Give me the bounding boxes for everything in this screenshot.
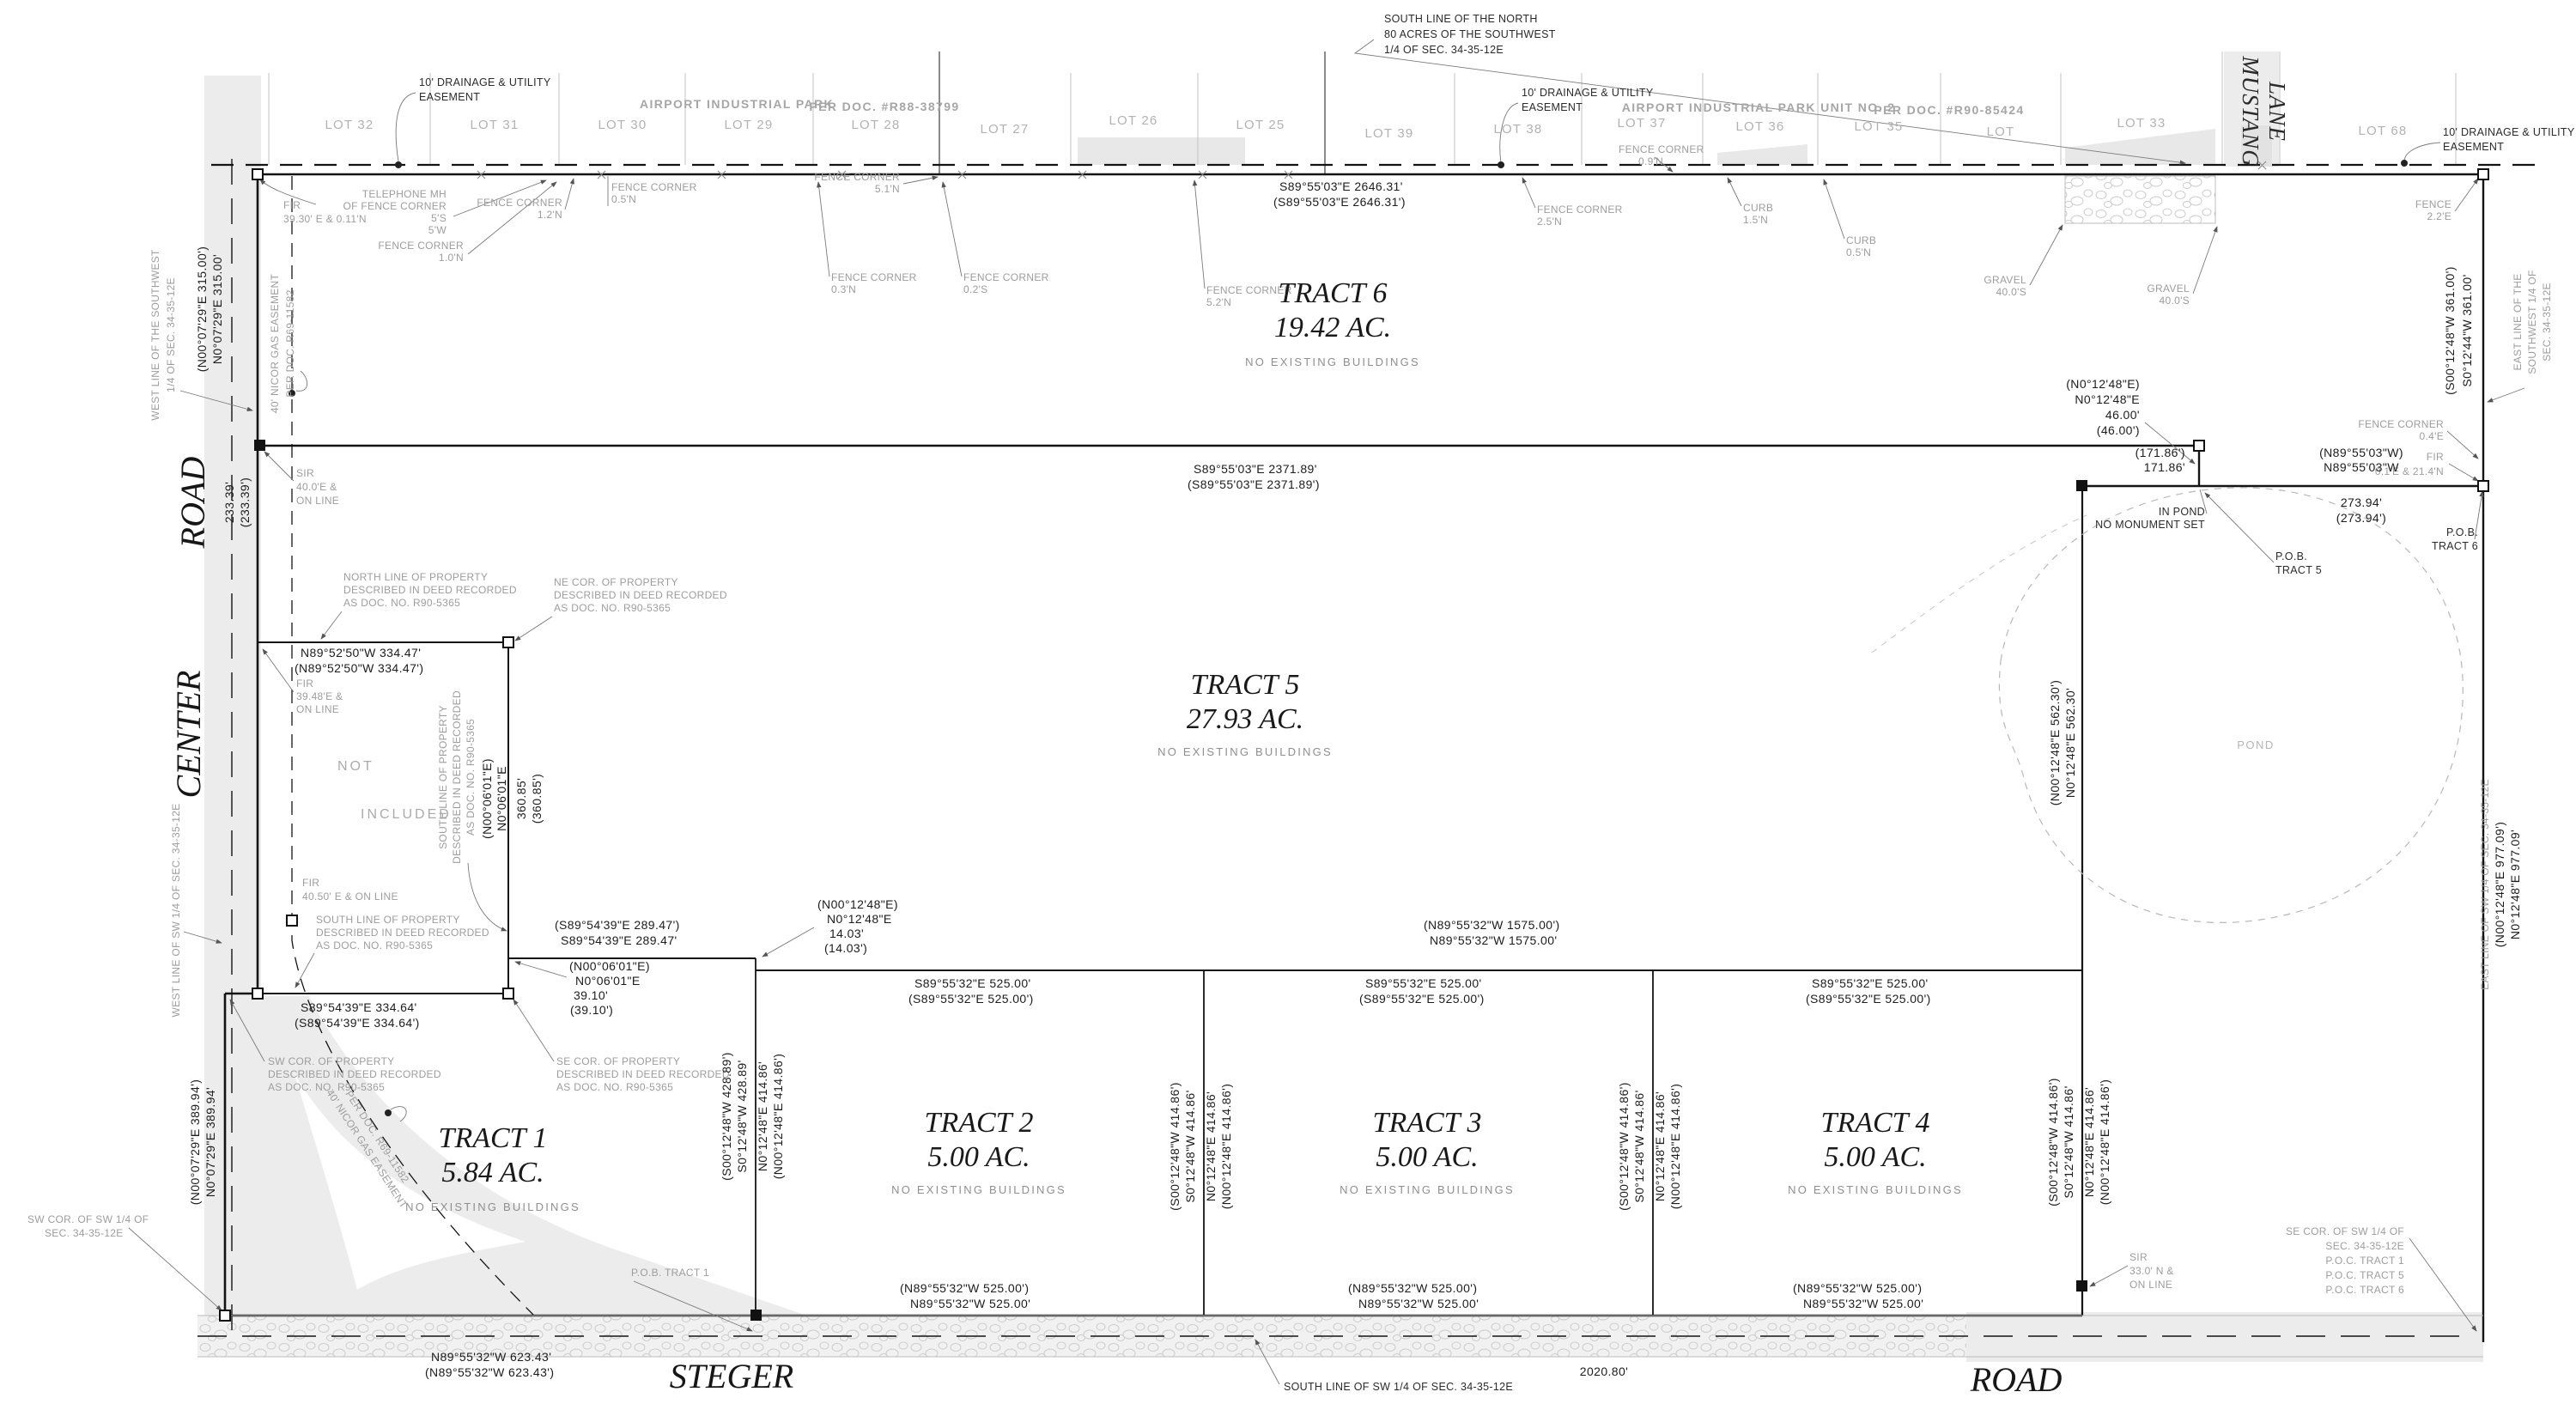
no-buildings-note: NO EXISTING BUILDINGS <box>405 1200 580 1213</box>
callout-label: IN POND <box>2159 506 2205 518</box>
callout-label: SOUTH LINE OF SW 1/4 OF SEC. 34-35-12E <box>1284 1381 1513 1393</box>
dimension-label: N0°12'48"E 414.86' <box>756 1061 769 1171</box>
road-name: STEGER <box>670 1357 793 1395</box>
subdivision-doc: PER DOC. #R90-85424 <box>1874 103 2024 117</box>
survey-note: DESCRIBED IN DEED RECORDED <box>554 589 727 601</box>
dimension-label: N0°12'48"E <box>827 912 892 926</box>
survey-note: FENCE CORNER <box>378 240 464 252</box>
survey-note: 5'W <box>428 224 447 236</box>
dimension-label: N89°52'50"W 334.47' <box>301 646 421 659</box>
dimension-label: 2020.80' <box>1580 1364 1628 1378</box>
monument-note: 39.30' E & 0.11'N <box>283 213 367 225</box>
dimension-label: (N00°07'29"E 315.00') <box>195 246 209 373</box>
lot-label: LOT 28 <box>852 118 901 132</box>
survey-note: WEST LINE OF THE SOUTHWEST <box>149 249 161 421</box>
easement-callout: EASEMENT <box>2443 141 2504 153</box>
dimension-label: N89°55'32"W 623.43' <box>431 1350 551 1364</box>
survey-note: DESCRIBED IN DEED RECORDED <box>268 1068 441 1080</box>
survey-note: P.O.C. TRACT 1 <box>2325 1255 2404 1267</box>
pond-label: POND <box>2237 738 2275 751</box>
survey-note: 0.9'N <box>1638 155 1663 167</box>
survey-note: AS DOC. NO. R90-5365 <box>343 597 460 609</box>
monument-note: FIR <box>283 199 301 211</box>
not-included-label: NOT <box>337 759 374 774</box>
lot-label: LOT 29 <box>725 118 774 132</box>
dimension-label: (S89°55'32"E 525.00') <box>1359 992 1485 1006</box>
dimension-label: (S89°54'39"E 334.64') <box>295 1016 420 1030</box>
dimension-label: N0°07'29"E 315.00' <box>210 254 224 364</box>
dimension-label: 171.86' <box>2144 460 2185 474</box>
tract-acreage: 5.00 AC. <box>1824 1141 1926 1173</box>
gravel-wedge-lot36 <box>1717 144 1807 165</box>
dimension-label: (N89°55'32"W 1575.00') <box>1424 918 1560 932</box>
survey-note: ON LINE <box>2129 1279 2172 1291</box>
dimension-label: (N00°12'48"E 562.30') <box>2048 680 2062 806</box>
survey-note: SOUTH LINE OF PROPERTY <box>437 705 449 849</box>
survey-note: SOUTHWEST 1/4 OF <box>2526 270 2538 374</box>
survey-note: SOUTH LINE OF PROPERTY <box>316 914 460 926</box>
dimension-label: S89°55'32"E 525.00' <box>1812 976 1929 990</box>
survey-note: 40.0'S <box>2160 295 2190 307</box>
nicor-easement-label: PER DOC. R69-11582 <box>284 289 296 397</box>
dimension-label: N89°55'32"W 1575.00' <box>1430 933 1557 947</box>
dimension-label: S89°54'39"E 334.64' <box>301 1000 417 1014</box>
dimension-label: S89°55'03"E 2646.31' <box>1279 179 1403 193</box>
dimension-label: N89°55'32"W 525.00' <box>910 1297 1030 1310</box>
pob-label: P.O.B. TRACT 1 <box>631 1267 709 1279</box>
survey-note: 1/4 OF SEC. 34-35-12E <box>165 277 177 392</box>
callout-label: NO MONUMENT SET <box>2095 519 2205 531</box>
survey-note: DESCRIBED IN DEED RECORDED <box>556 1068 730 1080</box>
dimension-label: S0°12'44"W 361.00' <box>2460 274 2474 386</box>
no-buildings-note: NO EXISTING BUILDINGS <box>891 1183 1066 1196</box>
lot-label: LOT 26 <box>1109 113 1158 128</box>
callout-label: P.O.B. <box>2446 526 2478 538</box>
survey-note: CURB <box>1846 234 1876 246</box>
monument-note: FIR <box>302 877 319 889</box>
survey-note: 0.4'E <box>2420 430 2444 442</box>
dimension-label: N0°12'48"E 414.86' <box>2082 1087 2096 1197</box>
survey-note: 1.2'N <box>538 209 562 221</box>
survey-note: 0.5'N <box>1846 246 1871 258</box>
tract-title: TRACT 6 <box>1279 277 1388 309</box>
road-name: MUSTANG <box>2238 55 2263 167</box>
callout-label: TRACT 6 <box>2432 540 2478 552</box>
north80-callout: 1/4 OF SEC. 34-35-12E <box>1384 44 1504 56</box>
lot-label: LOT 31 <box>471 118 519 132</box>
nicor-easement-label: 40' NICOR GAS EASEMENT <box>269 274 281 414</box>
dimension-label: (S00°12'48"W 361.00') <box>2443 266 2457 395</box>
survey-note: SEC. 34-35-12E <box>2325 1240 2404 1252</box>
dimension-label: (S00°12'48"W 414.86') <box>1168 1082 1182 1211</box>
survey-note: 2.2'E <box>2427 210 2451 222</box>
dimension-label: (S89°55'03"E 2371.89') <box>1188 477 1320 491</box>
survey-note: AS DOC. NO. R90-5365 <box>465 719 477 836</box>
no-buildings-note: NO EXISTING BUILDINGS <box>1157 745 1333 758</box>
dimension-label: (360.85') <box>530 774 544 824</box>
survey-note: 0.3'N <box>831 283 856 295</box>
tract-acreage: 5.84 AC. <box>441 1157 544 1188</box>
survey-note: NORTH LINE OF PROPERTY <box>343 571 488 583</box>
north80-callout: 80 ACRES OF THE SOUTHWEST <box>1384 28 1556 40</box>
dimension-label: (N00°12'48"E) <box>817 897 898 911</box>
dimension-label: S0°12'48"W 428.89' <box>735 1060 749 1172</box>
steger-road-east-band <box>1966 1312 2483 1362</box>
monument-note: SIR <box>2129 1251 2148 1263</box>
survey-note: FENCE CORNER <box>2358 418 2444 430</box>
dimension-label: N89°55'03"W <box>2324 460 2399 474</box>
dimension-label: (N00°07'29"E 389.94') <box>188 1079 202 1206</box>
road-name: LANE <box>2264 81 2290 142</box>
survey-note: DESCRIBED IN DEED RECORDED <box>343 584 517 596</box>
dimension-label: (N0°12'48"E) <box>2066 377 2140 391</box>
survey-note: FENCE <box>2415 198 2451 210</box>
survey-note: FENCE CORNER <box>814 171 900 183</box>
lot-label: LOT 38 <box>1494 122 1543 137</box>
survey-note: 5.1'N <box>875 183 900 195</box>
dimension-label: (N89°52'50"W 334.47') <box>295 661 423 675</box>
dimension-label: (N00°06'01"E) <box>569 959 650 973</box>
survey-note: 40.0'S <box>1996 286 2026 298</box>
dimension-label: (N89°55'32"W 623.43') <box>425 1365 554 1379</box>
easement-callout: 10' DRAINAGE & UTILITY <box>1522 87 1654 99</box>
survey-note: EAST LINE OF SW 1/4 OF SEC. 34-35-12E <box>2479 779 2491 990</box>
no-buildings-note: NO EXISTING BUILDINGS <box>1340 1183 1515 1196</box>
easement-callout: 10' DRAINAGE & UTILITY <box>419 76 551 88</box>
dimension-label: S0°12'48"W 414.86' <box>2062 1085 2075 1198</box>
tract-title: TRACT 4 <box>1821 1107 1930 1139</box>
dimension-label: S0°12'48"W 414.86' <box>1183 1090 1197 1202</box>
lot-label: LOT 68 <box>2359 124 2408 138</box>
dimension-label: (171.86') <box>2136 446 2185 459</box>
dimension-label: 46.00' <box>2105 408 2140 422</box>
survey-note: FENCE CORNER <box>831 271 917 283</box>
dimension-label: N0°12'48"E 977.09' <box>2508 830 2522 939</box>
tract-acreage: 5.00 AC. <box>927 1141 1030 1173</box>
survey-note: DESCRIBED IN DEED RECORDED <box>451 690 463 864</box>
dimension-label: (S00°12'48"W 428.89') <box>720 1052 733 1181</box>
lot-label: LOT 35 <box>1855 119 1904 134</box>
survey-note: SW COR. OF PROPERTY <box>268 1055 395 1067</box>
survey-note: FENCE CORNER <box>963 271 1049 283</box>
dimension-label: N0°12'48"E 562.30' <box>2063 688 2077 798</box>
dimension-label: (N00°06'01"E) <box>480 758 494 839</box>
dimension-label: N0°12'48"E 414.86' <box>1653 1091 1667 1201</box>
dimension-label: (N89°55'32"W 525.00') <box>1793 1281 1922 1295</box>
survey-note: 1.5'N <box>1743 214 1768 226</box>
tract-acreage: 5.00 AC. <box>1376 1141 1478 1173</box>
dimension-label: N89°55'32"W 525.00' <box>1358 1297 1479 1310</box>
survey-note: OF FENCE CORNER <box>343 200 447 212</box>
dimension-label: (S89°54'39"E 289.47') <box>555 918 680 932</box>
gravel-area-lot33 <box>2065 176 2215 223</box>
survey-note: 5.2'N <box>1206 296 1231 308</box>
road-name: ROAD <box>173 457 212 550</box>
pond-outline-arc <box>1872 515 2087 653</box>
dimension-label: 273.94' <box>2341 495 2382 509</box>
dimension-label: (S00°12'48"W 414.86') <box>2046 1078 2060 1206</box>
dimension-label: N0°06'01"E <box>495 766 508 831</box>
dimension-label: (N89°55'03"W) <box>2319 446 2403 459</box>
survey-note: AS DOC. NO. R90-5365 <box>268 1081 385 1093</box>
easement-callout: 10' DRAINAGE & UTILITY <box>2443 126 2575 138</box>
dimension-label: S0°12'48"W 414.86' <box>1632 1090 1646 1202</box>
dimension-label: S89°55'32"E 525.00' <box>1365 976 1482 990</box>
dimension-label: (46.00') <box>2097 423 2140 437</box>
dimension-label: (14.03') <box>824 941 867 955</box>
survey-plat-drawing: SOUTH LINE OF THE NORTH80 ACRES OF THE S… <box>0 0 2576 1404</box>
lot-label: LOT 25 <box>1236 118 1285 132</box>
gravel-wedge-lot26 <box>1078 137 1245 165</box>
survey-note: 40.50' E & ON LINE <box>302 890 398 903</box>
dimension-label: S89°55'32"E 525.00' <box>914 976 1031 990</box>
survey-note: FIR <box>2427 451 2444 463</box>
lot-label: LOT 36 <box>1736 119 1785 134</box>
survey-note: EAST LINE OF THE <box>2512 273 2524 370</box>
survey-note: 39.48'E & <box>296 690 343 702</box>
survey-note: FENCE CORNER <box>477 197 562 209</box>
lot-label: LOT <box>1987 125 2015 139</box>
dimension-label: (233.39') <box>238 477 252 527</box>
survey-note: CURB <box>1743 202 1773 214</box>
dimension-label: (S00°12'48"W 414.86') <box>1617 1082 1631 1211</box>
dimension-label: 233.39' <box>222 482 236 523</box>
dimension-label: (273.94') <box>2336 511 2386 525</box>
survey-note: GRAVEL <box>1984 274 2026 286</box>
tract-acreage: 27.93 AC. <box>1187 703 1303 735</box>
tract-acreage: 19.42 AC. <box>1274 312 1391 343</box>
dimension-label: (N00°12'48"E 414.86') <box>771 1054 785 1180</box>
dimension-label: (N89°55'32"W 525.00') <box>1348 1281 1477 1295</box>
monument-note: FIR <box>296 678 313 690</box>
survey-note: DESCRIBED IN DEED RECORDED <box>316 927 489 939</box>
survey-note: WEST LINE OF SW 1/4 OF SEC. 34-35-12E <box>170 804 182 1018</box>
dimension-label: S89°55'03"E 2371.89' <box>1194 462 1317 476</box>
tract-title: TRACT 1 <box>439 1122 548 1154</box>
monument-note: SIR <box>296 467 314 479</box>
survey-note: P.O.C. TRACT 6 <box>2325 1284 2404 1296</box>
survey-note: SE COR. OF SW 1/4 OF <box>2286 1225 2404 1237</box>
lot-label: LOT 32 <box>325 118 374 132</box>
survey-note: SE COR. OF PROPERTY <box>556 1055 680 1067</box>
survey-note: AS DOC. NO. R90-5365 <box>556 1081 673 1093</box>
survey-note: 0.2'S <box>963 283 987 295</box>
dimension-label: (S89°55'03"E 2646.31') <box>1273 195 1406 209</box>
lot-label: LOT 37 <box>1618 116 1667 131</box>
dimension-label: (N00°12'48"E 414.86') <box>2098 1079 2111 1206</box>
survey-note: 1.0'N <box>439 252 464 264</box>
gravel-wedge-lot33 <box>2065 129 2215 165</box>
dimension-label: (N00°12'48"E 414.86') <box>1668 1084 1682 1210</box>
dimension-label: 360.85' <box>514 778 528 819</box>
tract-title: TRACT 2 <box>925 1107 1034 1139</box>
easement-callout: EASEMENT <box>1522 101 1583 113</box>
callout-label: P.O.B. <box>2275 550 2307 562</box>
survey-note: ON LINE <box>296 703 339 715</box>
survey-note: FENCE CORNER <box>1619 143 1704 155</box>
dimension-label: (S89°55'32"E 525.00') <box>908 992 1034 1006</box>
survey-note: P.O.C. TRACT 5 <box>2325 1269 2404 1281</box>
dimension-label: (N89°55'32"W 525.00') <box>900 1281 1029 1295</box>
tract-title: TRACT 3 <box>1373 1107 1482 1139</box>
subdivision-doc: PER DOC. #R88-38799 <box>809 100 959 113</box>
survey-note: TELEPHONE MH <box>362 188 447 200</box>
survey-note: 5'S <box>431 212 447 224</box>
survey-note: ON LINE <box>296 495 339 507</box>
lot-label: LOT 33 <box>2117 116 2166 131</box>
survey-note: 2.5'N <box>1537 216 1562 228</box>
tract-title: TRACT 5 <box>1191 669 1300 701</box>
dimension-label: (39.10') <box>570 1003 613 1017</box>
survey-note: 0.5'N <box>611 193 636 205</box>
survey-note: SW COR. OF SW 1/4 OF <box>27 1213 149 1225</box>
survey-note: 40.0'E & <box>296 481 337 493</box>
callout-label: TRACT 5 <box>2275 564 2322 576</box>
survey-note: 33.0' N & <box>2129 1265 2174 1277</box>
dimension-label: N89°55'32"W 525.00' <box>1803 1297 1923 1310</box>
survey-plat-page: SOUTH LINE OF THE NORTH80 ACRES OF THE S… <box>0 0 2576 1404</box>
dimension-label: (N00°12'48"E 414.86') <box>1219 1084 1233 1210</box>
dimension-label: N0°12'48"E <box>2075 392 2140 406</box>
dimension-label: (N00°12'48"E 977.09') <box>2493 822 2506 948</box>
no-buildings-note: NO EXISTING BUILDINGS <box>1245 356 1420 368</box>
survey-note: NE COR. OF PROPERTY <box>554 576 678 588</box>
road-name: ROAD <box>1970 1360 2063 1399</box>
subdivision-title: AIRPORT INDUSTRIAL PARK UNIT NO. 2 <box>1622 100 1896 114</box>
dimension-label: 14.03' <box>829 927 864 940</box>
survey-note: SEC. 34-35-12E <box>2541 283 2553 362</box>
dimension-label: 39.10' <box>574 988 608 1002</box>
survey-note: FENCE CORNER <box>1537 204 1623 216</box>
north80-callout: SOUTH LINE OF THE NORTH <box>1384 13 1538 25</box>
lot-label: LOT 39 <box>1365 126 1414 141</box>
survey-note: FENCE CORNER <box>611 181 697 193</box>
dimension-label: N0°07'29"E 389.94' <box>204 1087 217 1197</box>
dimension-label: N0°06'01"E <box>575 974 641 988</box>
road-name: CENTER <box>169 671 208 799</box>
dimension-label: (S89°55'32"E 525.00') <box>1806 992 1931 1006</box>
lot-label: LOT 27 <box>981 122 1030 137</box>
survey-note: SEC. 34-35-12E <box>45 1227 124 1239</box>
survey-note: GRAVEL <box>2147 283 2190 295</box>
no-buildings-note: NO EXISTING BUILDINGS <box>1788 1183 1963 1196</box>
subdivision-title: AIRPORT INDUSTRIAL PARK <box>640 97 834 111</box>
dimension-label: N0°12'48"E 414.86' <box>1204 1091 1218 1201</box>
survey-note: AS DOC. NO. R90-5365 <box>554 602 671 614</box>
survey-note: AS DOC. NO. R90-5365 <box>316 939 433 951</box>
dimension-label: S89°54'39"E 289.47' <box>561 933 677 947</box>
lot-label: LOT 30 <box>598 118 647 132</box>
easement-callout: EASEMENT <box>419 91 480 103</box>
